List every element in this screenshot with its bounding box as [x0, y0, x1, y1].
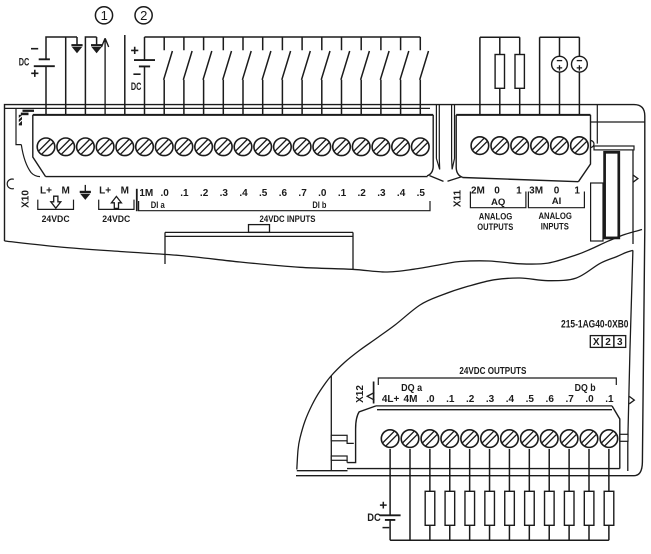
svg-text:2: 2	[605, 337, 611, 348]
svg-text:.5: .5	[259, 188, 268, 199]
svg-text:.1: .1	[446, 394, 455, 405]
svg-text:.3: .3	[486, 394, 495, 405]
svg-text:.4: .4	[397, 188, 406, 199]
svg-text:.0: .0	[585, 394, 594, 405]
svg-text:.7: .7	[298, 188, 307, 199]
svg-text:2M: 2M	[471, 186, 485, 197]
svg-text:4M: 4M	[404, 394, 418, 405]
svg-text:.4: .4	[506, 394, 515, 405]
svg-text:AI: AI	[552, 196, 562, 207]
svg-text:OUTPUTS: OUTPUTS	[477, 222, 513, 233]
svg-text:DC: DC	[367, 512, 381, 524]
svg-text:1M: 1M	[139, 188, 153, 199]
svg-text:2: 2	[140, 8, 147, 23]
svg-text:X: X	[593, 337, 600, 348]
svg-text:4L+: 4L+	[382, 394, 400, 405]
svg-text:24VDC: 24VDC	[42, 214, 70, 225]
svg-text:L+: L+	[99, 186, 111, 197]
svg-text:DI a: DI a	[151, 200, 166, 210]
svg-text:.3: .3	[377, 188, 386, 199]
svg-text:.6: .6	[546, 394, 555, 405]
svg-text:.1: .1	[338, 188, 347, 199]
svg-text:1: 1	[516, 186, 522, 197]
svg-text:X12: X12	[355, 385, 366, 403]
svg-text:INPUTS: INPUTS	[541, 221, 569, 232]
svg-text:.3: .3	[220, 188, 229, 199]
svg-text:M: M	[121, 186, 129, 197]
svg-text:.2: .2	[358, 188, 367, 199]
svg-text:DQ a: DQ a	[401, 383, 422, 394]
svg-text:.6: .6	[279, 188, 288, 199]
svg-text:.0: .0	[426, 394, 435, 405]
svg-text:DI b: DI b	[312, 200, 326, 210]
svg-text:AQ: AQ	[491, 197, 506, 208]
svg-text:DQ b: DQ b	[575, 383, 596, 394]
svg-text:L+: L+	[40, 186, 52, 197]
svg-text:M: M	[62, 186, 70, 197]
svg-text:24VDC: 24VDC	[102, 214, 130, 225]
svg-text:.2: .2	[200, 188, 209, 199]
svg-text:.4: .4	[239, 188, 248, 199]
svg-text:.5: .5	[526, 394, 535, 405]
svg-text:.7: .7	[565, 394, 574, 405]
svg-text:0: 0	[554, 186, 560, 197]
svg-text:1: 1	[101, 8, 108, 23]
svg-text:.1: .1	[605, 394, 614, 405]
svg-text:.1: .1	[180, 188, 189, 199]
svg-text:24VDC INPUTS: 24VDC INPUTS	[260, 214, 316, 225]
svg-text:.0: .0	[161, 188, 170, 199]
svg-text:DC: DC	[19, 57, 30, 69]
svg-text:.2: .2	[466, 394, 475, 405]
svg-text:24VDC OUTPUTS: 24VDC OUTPUTS	[459, 366, 526, 377]
svg-text:0: 0	[494, 186, 500, 197]
svg-text:215-1AG40-0XB0: 215-1AG40-0XB0	[561, 319, 629, 331]
svg-text:X10: X10	[20, 190, 31, 208]
svg-text:DC: DC	[131, 81, 142, 93]
svg-text:1: 1	[574, 186, 580, 197]
svg-text:.5: .5	[417, 188, 426, 199]
svg-text:X11: X11	[453, 189, 464, 207]
svg-text:3M: 3M	[529, 186, 543, 197]
svg-text:3: 3	[617, 337, 623, 348]
svg-text:.0: .0	[318, 188, 327, 199]
